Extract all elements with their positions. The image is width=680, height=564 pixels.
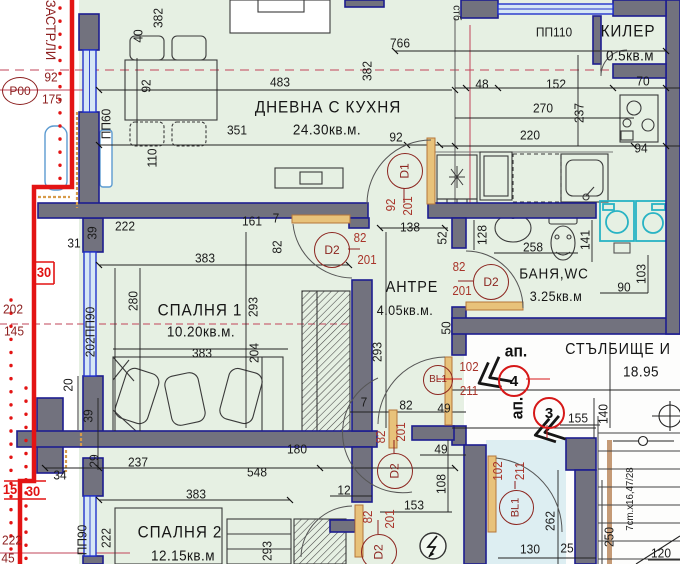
window-tag: ПП110 xyxy=(536,26,572,39)
door-dim: 201 xyxy=(402,196,415,215)
room-label-staircase: СТЪЛБИЩЕ И xyxy=(565,342,671,358)
door-tag-d1: D1 xyxy=(387,153,423,189)
room-area-hall: 4.05кв.м. xyxy=(377,303,433,317)
room-area-staircase: 18.95 xyxy=(623,365,659,380)
door-dim: 211 xyxy=(514,462,527,480)
door-dim: 201 xyxy=(357,254,376,267)
dimension-label: 138 xyxy=(400,221,420,234)
dimension-label: 7 xyxy=(273,212,280,225)
dimension-label: 766 xyxy=(390,37,410,50)
room-label-hall: АНТРЕ xyxy=(386,280,439,296)
dimension-label: 49 xyxy=(437,402,450,415)
dimension-label: 180 xyxy=(287,443,307,456)
dimension-label: 548 xyxy=(247,466,267,479)
room-area-bedroom1: 10.20кв.м. xyxy=(167,325,235,340)
dimension-label: 222 xyxy=(2,534,22,547)
dimension-label: 128 xyxy=(476,225,489,245)
room-label-living: ДНЕВНА С КУХНЯ xyxy=(255,99,401,116)
dimension-label: 237 xyxy=(573,103,586,123)
door-dim: 201 xyxy=(384,509,397,528)
dimension-label: 383 xyxy=(195,252,215,265)
dimension-label: 82 xyxy=(271,240,284,253)
dimension-label: 49 xyxy=(434,443,447,456)
door-dim: 82 xyxy=(375,431,388,444)
door-dim: 102 xyxy=(459,361,478,374)
dimension-label: 222 xyxy=(115,220,135,233)
dimension-label: 120 xyxy=(651,547,671,560)
dimension-label: 30 xyxy=(37,265,51,279)
dimension-label: 92 xyxy=(140,79,153,92)
room-label-bathroom: БАНЯ,WC xyxy=(519,267,589,282)
door-tag-bl1-entry: BL1 xyxy=(423,365,453,395)
apartment-number-4: 4 xyxy=(498,365,530,397)
dimension-label: 92 xyxy=(44,71,57,84)
dimension-label: 250 xyxy=(603,527,616,547)
dimension-label: 90 xyxy=(617,281,630,294)
dimension-label: 25 xyxy=(560,542,573,555)
dimension-label: 130 xyxy=(520,543,540,556)
dimension-label: 31 xyxy=(67,237,80,250)
room-label-bedroom1: СПАЛНЯ 1 xyxy=(158,302,243,319)
room-label-bedroom2: СПАЛНЯ 2 xyxy=(138,524,223,541)
dimension-label: 293 xyxy=(261,541,274,561)
dimension-label: стб xyxy=(451,5,462,20)
dimension-label: 155 xyxy=(568,412,588,425)
dimension-label: 351 xyxy=(227,124,247,137)
window-tag: ПП60 xyxy=(100,109,113,140)
floor-plan-page: ЗАСТР.ЛИ9217530153020214522245ПП60110924… xyxy=(0,0,680,564)
dimension-label: 202 xyxy=(3,303,23,316)
dimension-label: 293 xyxy=(247,297,260,317)
dimension-label: 382 xyxy=(152,8,165,28)
dimension-label: 483 xyxy=(270,76,290,89)
dimension-label: 45 xyxy=(1,552,14,564)
dimension-label: 161 xyxy=(242,215,262,228)
dimension-label: 52 xyxy=(436,231,449,244)
dimension-label: 140 xyxy=(597,404,610,424)
door-tag-d2-bedroom2: D2 xyxy=(361,534,397,564)
dimension-label: 92 xyxy=(389,131,402,144)
dimension-label: 110 xyxy=(146,148,159,167)
dimension-label: 48 xyxy=(475,78,488,91)
axis-marker-p00: Р00 xyxy=(2,77,38,105)
window-tag: 202ПП90 xyxy=(84,307,97,357)
dimension-label: 141 xyxy=(579,230,592,250)
dimension-label: 220 xyxy=(520,129,540,142)
door-tag-d2-hall: D2 xyxy=(377,453,413,489)
dimension-label: 20 xyxy=(62,378,75,391)
dimension-label: 50 xyxy=(440,321,453,334)
dimension-label: 39 xyxy=(82,409,95,422)
dimension-label: 382 xyxy=(361,61,374,81)
dimension-label: 94 xyxy=(634,142,647,155)
door-dim: 201 xyxy=(395,422,408,441)
door-dim: 82 xyxy=(453,261,466,274)
dimension-label: 34 xyxy=(53,469,66,482)
dimension-label: 7 xyxy=(361,396,368,409)
dimension-label: 262 xyxy=(544,511,557,531)
dimension-label: 108 xyxy=(435,474,448,494)
dimension-label: 153 xyxy=(404,499,424,512)
dimension-label: 175 xyxy=(42,93,62,106)
dimension-label: 103 xyxy=(635,264,648,284)
room-area-bathroom: 3.25кв.м xyxy=(530,289,582,303)
room-area-living: 24.30кв.м. xyxy=(293,123,361,138)
room-area-closet: 0.5кв.м xyxy=(606,49,654,64)
dimension-label: 30 xyxy=(26,484,40,498)
dimension-label: 280 xyxy=(127,291,140,311)
dimension-label: 82 xyxy=(399,399,412,412)
dimension-label: 12 xyxy=(337,484,350,497)
dimension-label: 237 xyxy=(128,456,148,469)
room-area-bedroom2: 12.15кв.м xyxy=(151,549,215,564)
building-line-label: ЗАСТР.ЛИ xyxy=(44,0,58,60)
dimension-label: 152 xyxy=(546,78,566,91)
dimension-label: 258 xyxy=(523,241,543,254)
apartment-number-3: 3 xyxy=(533,397,565,429)
dimension-label: 40 xyxy=(132,29,145,42)
apartment-label: ап. xyxy=(509,397,526,419)
room-label-closet: КИЛЕР xyxy=(601,23,656,40)
door-dim: 82 xyxy=(362,511,375,524)
door-dim: 82 xyxy=(354,232,367,245)
apartment-label: ап. xyxy=(505,343,527,360)
stair-spec-label: 7cm.x16,47/28 xyxy=(625,467,636,530)
dimension-label: 383 xyxy=(192,347,212,360)
dimension-label: 70 xyxy=(636,75,649,88)
door-dim: 201 xyxy=(452,285,471,298)
dimension-label: 383 xyxy=(186,488,206,501)
dimension-label: 29 xyxy=(88,454,101,467)
dimension-label: 15 xyxy=(3,482,17,496)
dimension-label: 293 xyxy=(371,342,384,362)
dimension-label: 204 xyxy=(248,343,261,363)
door-dim: 102 xyxy=(492,461,505,480)
dimension-label: 145 xyxy=(4,325,24,338)
door-tag-d2-bedroom1: D2 xyxy=(314,232,350,268)
door-dim: 92 xyxy=(385,199,398,212)
dimension-label: 270 xyxy=(533,102,553,115)
door-tag-bl1-vestibule: BL1 xyxy=(499,490,534,525)
window-tag: ПП90 xyxy=(76,525,89,556)
door-dim: 211 xyxy=(460,385,478,398)
dimension-label: 222 xyxy=(100,528,113,548)
door-tag-d2-bathroom: D2 xyxy=(473,264,509,300)
dimension-label: 39 xyxy=(86,226,99,239)
